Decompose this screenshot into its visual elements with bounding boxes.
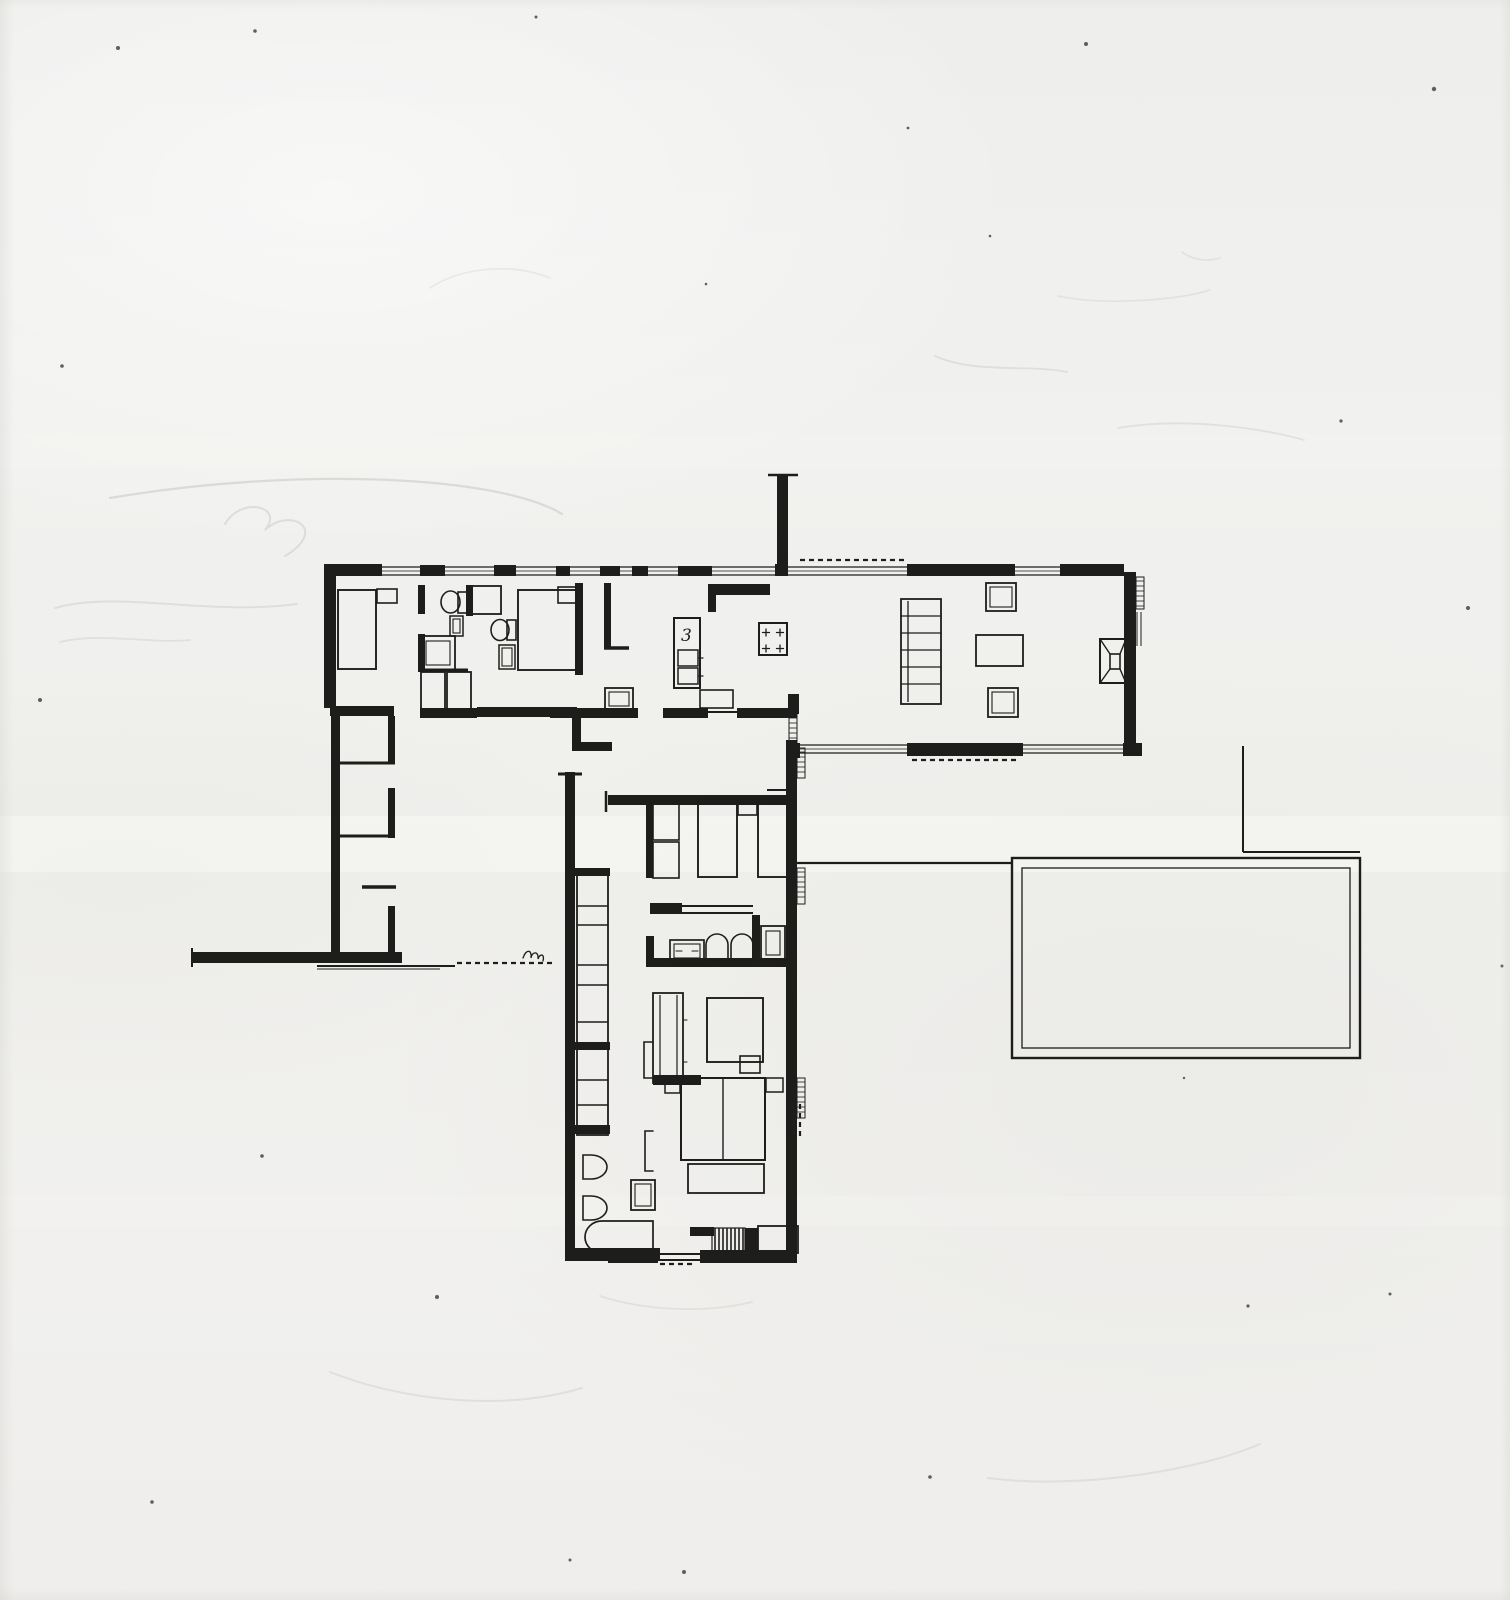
outline-inner xyxy=(453,619,460,633)
outline xyxy=(518,590,577,670)
wall-segment xyxy=(690,1227,714,1236)
dust-speck xyxy=(253,29,257,33)
dust-speck xyxy=(535,16,538,19)
wall-segment xyxy=(331,708,340,958)
outline xyxy=(976,635,1023,666)
wall-segment xyxy=(663,708,708,718)
outline xyxy=(1022,868,1350,1048)
living-room xyxy=(788,572,1144,760)
dust-speck xyxy=(989,235,992,238)
garden-terrace-wall xyxy=(192,948,553,969)
paper-tone xyxy=(0,816,1510,872)
wall-segment xyxy=(608,795,797,805)
wall-segment xyxy=(418,585,425,614)
dust-speck xyxy=(1183,1077,1185,1079)
dust-speck xyxy=(116,46,120,50)
wall-segment xyxy=(324,564,336,708)
outline-inner xyxy=(502,648,512,666)
wall-segment xyxy=(565,772,575,1258)
dust-speck xyxy=(1246,1304,1249,1307)
ghost-pencil-mark xyxy=(330,1372,582,1401)
dust-speck xyxy=(1084,42,1088,46)
handwritten-mark: 3 xyxy=(681,626,692,646)
wall-segment xyxy=(388,906,395,956)
ghost-pencil-mark xyxy=(1182,252,1220,260)
louver-box xyxy=(712,1228,745,1253)
ghost-pencil-mark xyxy=(60,638,190,642)
wall-segment xyxy=(565,1248,660,1261)
dust-speck xyxy=(60,364,64,368)
outline xyxy=(740,1056,760,1073)
outline-inner xyxy=(426,641,450,665)
upper-bedroom-1 xyxy=(338,589,397,669)
ghost-pencil-mark xyxy=(600,1296,752,1309)
wall-segment xyxy=(420,565,445,576)
fixture-path xyxy=(1100,639,1126,683)
outline xyxy=(678,650,698,666)
floor-plan-drawing: 3 xyxy=(0,0,1510,1600)
outline xyxy=(1012,858,1360,1058)
kitchen: 3 xyxy=(605,584,797,718)
wall-segment xyxy=(575,1042,610,1050)
wall-segment xyxy=(575,868,610,876)
wall-segment xyxy=(494,565,516,576)
ghost-pencil-mark xyxy=(225,507,305,556)
wall-segment xyxy=(388,788,395,838)
wall-segment xyxy=(556,566,570,576)
outline xyxy=(688,1164,764,1193)
wall-segment xyxy=(420,708,477,718)
upper-bedroom-2 xyxy=(518,587,577,670)
dust-speck xyxy=(705,283,708,286)
fixture-path xyxy=(441,591,460,613)
wall-segment xyxy=(600,566,620,576)
wall-segment xyxy=(1123,743,1142,756)
paper-artifacts xyxy=(0,16,1510,1575)
outline-inner xyxy=(990,587,1012,607)
wall-segment xyxy=(1060,564,1124,576)
wall-segment xyxy=(745,1228,758,1253)
wall-segment xyxy=(786,740,797,1258)
wing-master-bedroom xyxy=(665,1078,783,1193)
window-ladder xyxy=(789,714,797,744)
dust-speck xyxy=(435,1295,439,1299)
dust-speck xyxy=(1501,965,1504,968)
outline-inner xyxy=(992,692,1014,713)
fixture-path xyxy=(577,906,608,1105)
outline xyxy=(338,590,376,669)
fixture-path xyxy=(901,616,941,684)
pool-terrace xyxy=(797,746,1360,1058)
dust-speck xyxy=(260,1154,264,1158)
outline xyxy=(499,645,515,669)
dust-speck xyxy=(1389,1293,1392,1296)
fixture-path xyxy=(645,1131,653,1171)
wall-segment xyxy=(708,584,716,612)
ghost-pencil-mark xyxy=(935,356,1067,372)
dust-speck xyxy=(1466,606,1470,610)
fixture-path xyxy=(644,1042,653,1078)
wall-segment xyxy=(650,903,682,914)
upper-wing-walls xyxy=(324,564,638,751)
dust-speck xyxy=(150,1500,154,1504)
wing-closets-and-master-bath xyxy=(575,868,655,1253)
ghost-pencil-mark xyxy=(430,269,550,288)
wall-segment xyxy=(604,583,611,649)
outline xyxy=(707,998,763,1062)
outline xyxy=(577,875,608,1135)
outline xyxy=(901,599,941,704)
wing-bathroom xyxy=(670,926,785,962)
fixture-path xyxy=(731,934,753,961)
north-facade-wall xyxy=(324,474,1124,576)
dust-speck xyxy=(569,1559,572,1562)
outline xyxy=(700,690,733,708)
dust-speck xyxy=(682,1570,686,1574)
wall-segment xyxy=(788,694,799,714)
dust-speck xyxy=(38,698,42,702)
outline-inner xyxy=(766,931,780,955)
outline xyxy=(377,589,397,603)
ghost-pencil-mark xyxy=(988,1444,1260,1482)
wall-segment xyxy=(646,798,653,878)
window-ladder xyxy=(1136,577,1144,609)
dust-speck xyxy=(907,127,910,130)
dust-speck xyxy=(1339,419,1342,422)
wall-segment xyxy=(575,1125,610,1134)
window-ladder xyxy=(797,868,805,904)
wall-segment xyxy=(907,743,1023,756)
ghost-pencil-mark xyxy=(55,601,297,608)
dust-speck xyxy=(1432,87,1436,91)
outline xyxy=(447,672,471,712)
outline xyxy=(470,586,501,614)
wall-segment xyxy=(572,742,612,751)
outline xyxy=(766,1078,783,1092)
wall-segment xyxy=(193,952,402,963)
wall-segment xyxy=(907,564,1015,576)
ghost-pencil-mark xyxy=(1058,290,1210,301)
wall-segment xyxy=(632,566,648,576)
fixture-path xyxy=(523,951,543,961)
paper-tone xyxy=(0,434,1510,468)
outline xyxy=(678,668,698,684)
wall-segment xyxy=(777,474,788,576)
outline xyxy=(1110,654,1120,669)
outline xyxy=(759,623,787,655)
dust-speck xyxy=(928,1475,932,1479)
outline-inner xyxy=(609,692,629,706)
outline xyxy=(421,672,445,712)
wing-bedroom-2 xyxy=(644,993,763,1083)
wall-segment xyxy=(708,584,770,595)
ghost-pencil-mark xyxy=(110,479,562,514)
fixture-path xyxy=(763,629,784,652)
wall-segment xyxy=(678,566,712,576)
scanned-floor-plan-page: 3 xyxy=(0,0,1510,1600)
paper-tone xyxy=(0,1196,1510,1226)
wall-segment xyxy=(700,1250,797,1263)
fixture-path xyxy=(706,934,728,961)
outline xyxy=(653,993,683,1083)
wall-segment xyxy=(388,716,395,762)
fixture-path xyxy=(583,1155,607,1179)
